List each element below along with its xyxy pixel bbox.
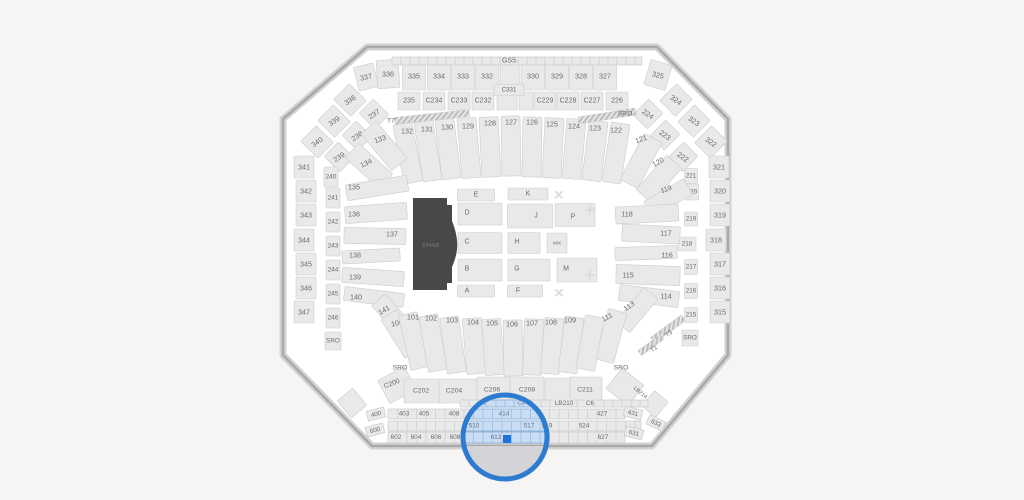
row-label: 517 — [524, 423, 535, 430]
section-label: 138 — [349, 251, 361, 260]
section-label: 118 — [621, 210, 632, 219]
section-label: C — [464, 239, 469, 246]
section-label: 336 — [382, 70, 394, 79]
section-label: 131 — [421, 125, 433, 134]
section-label: A — [465, 288, 470, 295]
section-label: C234 — [426, 98, 443, 105]
section-label: 344 — [298, 236, 310, 245]
section-label: 242 — [328, 219, 339, 226]
row-label: 604 — [411, 434, 422, 441]
section-label: 316 — [714, 284, 726, 293]
section-label: 243 — [328, 243, 339, 250]
row-label: 427 — [597, 411, 608, 418]
section-label: 235 — [403, 98, 415, 105]
section-label: SRO — [326, 338, 340, 345]
section-label: 218 — [682, 241, 693, 248]
section-label: F — [516, 288, 520, 295]
section-F[interactable] — [508, 285, 543, 297]
section-label: 341 — [298, 163, 310, 172]
section-label: 136 — [348, 210, 360, 219]
label-SRO: SRO — [618, 111, 633, 118]
section-label: 107 — [526, 319, 538, 328]
section-label: 101 — [407, 313, 419, 322]
section-label: 102 — [425, 314, 437, 323]
section-label: 115 — [622, 271, 633, 280]
section-label: C233 — [451, 98, 468, 105]
section-label: C229 — [537, 98, 554, 105]
section-label: 240 — [326, 174, 337, 181]
section-label: 109 — [564, 316, 576, 325]
section-label: 317 — [714, 260, 726, 269]
section-label: 104 — [467, 318, 479, 327]
section-label: 125 — [546, 120, 558, 129]
section-label: 215 — [686, 312, 697, 319]
section-label: 137 — [386, 230, 398, 239]
label-SRO: SRO — [614, 365, 629, 372]
floor-plus-marker-icon: + — [585, 200, 596, 220]
section-label: 105 — [486, 319, 498, 328]
section-label: C206 — [484, 387, 500, 394]
section-label: 114 — [660, 292, 671, 301]
section-label: 333 — [457, 72, 469, 81]
section-label: H — [514, 239, 519, 246]
section-label: 103 — [446, 316, 458, 325]
section-label: 122 — [610, 126, 622, 135]
section-label: E — [474, 192, 479, 199]
seat-map[interactable]: 3373363353343333323303293283273253243233… — [0, 0, 1024, 500]
section-label: 123 — [589, 124, 601, 133]
section-label: 332 — [481, 72, 493, 81]
section-label: 330 — [527, 72, 539, 81]
section-unlabeled — [545, 378, 571, 402]
section-label: 124 — [568, 122, 580, 131]
section-label: 127 — [505, 118, 517, 127]
section-label: MIX — [553, 241, 561, 246]
floor-x-marker-icon: ✕ — [554, 286, 565, 301]
section-label: M — [563, 266, 569, 273]
section-label: J — [534, 213, 538, 220]
section-A[interactable] — [458, 285, 495, 297]
section-label: 342 — [300, 187, 312, 196]
section-label: 226 — [611, 98, 623, 105]
section-label: 216 — [686, 288, 697, 295]
section-label: 130 — [441, 123, 453, 132]
section-label: 221 — [686, 173, 697, 180]
selected-seat-marker[interactable] — [503, 435, 511, 443]
section-J[interactable] — [508, 204, 553, 228]
section-label: 126 — [526, 118, 538, 127]
row-label: 602 — [391, 434, 402, 441]
seatmap-container: 3373363353343333323303293283273253243233… — [0, 0, 1024, 500]
section-label: 245 — [328, 291, 339, 298]
section-label: P — [571, 214, 576, 221]
section-label: C204 — [446, 388, 462, 395]
row-label: 408 — [449, 411, 460, 418]
section-label: C202 — [413, 388, 429, 395]
stage: STAGE — [413, 198, 457, 290]
section-label: 346 — [300, 284, 312, 293]
section-label: C331 — [502, 87, 517, 94]
section-H[interactable] — [508, 233, 540, 254]
row-label: 524 — [579, 423, 590, 430]
row-label: 403 — [399, 411, 410, 418]
section-label: 241 — [328, 195, 339, 202]
row-label: 414 — [499, 411, 510, 418]
section-label: 108 — [545, 318, 557, 327]
floor-x-marker-icon: ✕ — [554, 188, 565, 203]
section-label: G — [514, 266, 519, 273]
section-label: 319 — [714, 211, 726, 220]
section-label: 347 — [298, 308, 310, 317]
section-label: 140 — [350, 293, 362, 302]
label-T7: T7 — [387, 118, 395, 125]
section-label: 246 — [328, 315, 339, 322]
section-label: C228 — [560, 98, 577, 105]
row-label: LB210 — [555, 400, 574, 407]
row-label: 510 — [469, 423, 480, 430]
section-label: 139 — [349, 273, 361, 282]
section-label: 132 — [401, 127, 413, 136]
section-label: 320 — [714, 187, 726, 196]
section-label: SRO — [683, 335, 697, 342]
section-label: 219 — [686, 216, 697, 223]
row-label: 613 — [491, 434, 502, 441]
section-label: K — [526, 191, 531, 198]
row-label: 608 — [450, 434, 461, 441]
section-label: C227 — [584, 98, 601, 105]
row-label: 405 — [419, 411, 430, 418]
section-label: 135 — [348, 183, 360, 192]
section-label: C232 — [475, 98, 492, 105]
section-label: 116 — [661, 251, 672, 260]
section-label: 328 — [575, 72, 587, 81]
label-SRO: SRO — [393, 365, 408, 372]
section-label: 128 — [484, 119, 496, 128]
floor-plus-marker-icon: + — [585, 265, 596, 285]
section-label: 329 — [551, 72, 563, 81]
section-label: 321 — [713, 163, 725, 172]
row-label: 627 — [598, 434, 609, 441]
section-label: 318 — [710, 236, 722, 245]
row-label: GS5 — [502, 58, 516, 65]
section-label: 334 — [433, 72, 445, 81]
section-label: 129 — [462, 122, 474, 131]
section-label: 244 — [328, 267, 339, 274]
stage-label: STAGE — [422, 243, 439, 248]
section-label: 217 — [686, 264, 697, 271]
section-label: 327 — [599, 72, 611, 81]
section-label: 345 — [300, 260, 312, 269]
section-label: 335 — [408, 72, 420, 81]
section-label: 343 — [300, 211, 312, 220]
strip-gs5[interactable]: GS5 — [392, 57, 642, 65]
section-label: C211 — [577, 387, 593, 394]
row-label: 606 — [431, 434, 442, 441]
section-label: 106 — [506, 320, 518, 329]
row-label: C6 — [586, 400, 595, 407]
section-label: B — [465, 266, 470, 273]
section-label: D — [464, 210, 469, 217]
section-label: 315 — [714, 308, 726, 317]
section-label: C208 — [519, 387, 535, 394]
section-label: 117 — [660, 229, 671, 238]
